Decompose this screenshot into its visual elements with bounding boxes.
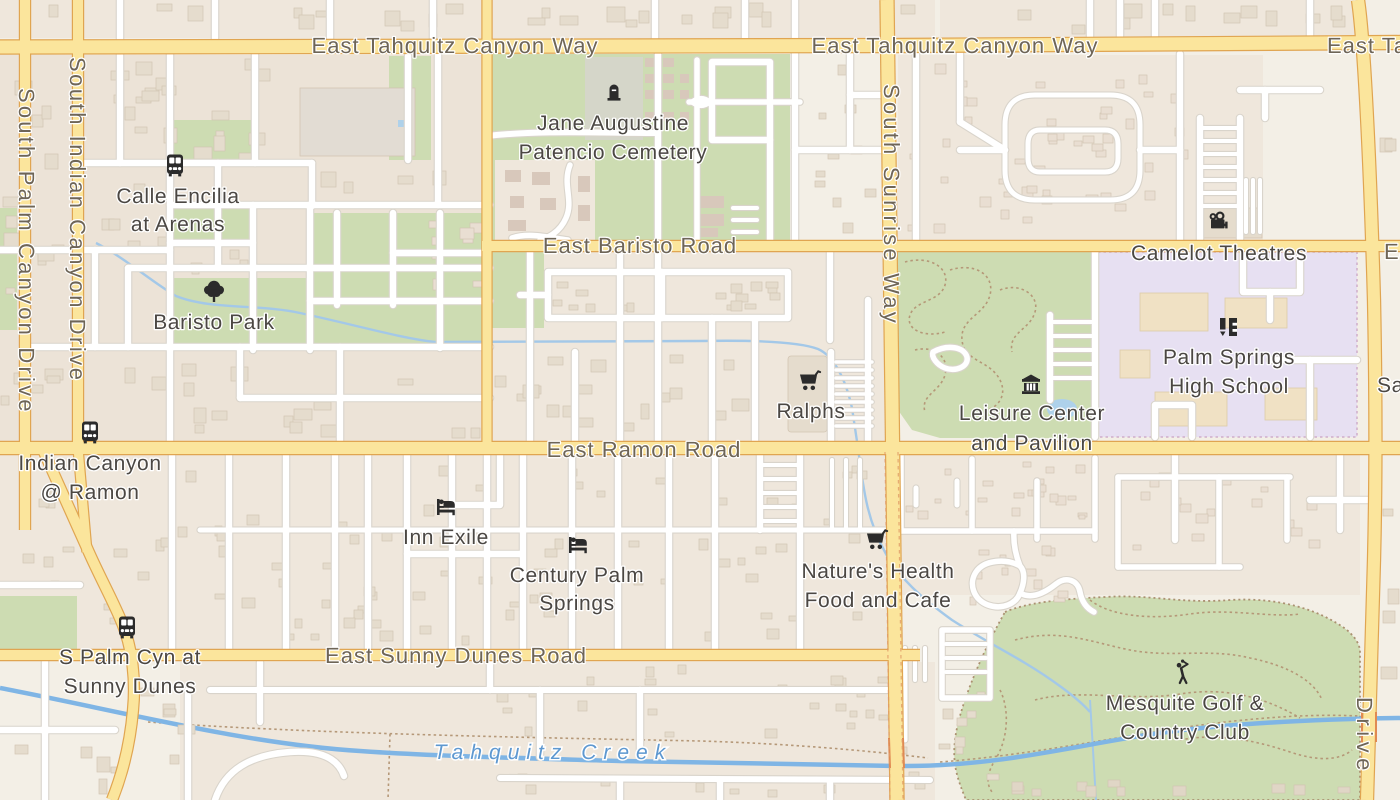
svg-text:@ Ramon: @ Ramon [40, 481, 139, 504]
svg-text:East Baristo Road: East Baristo Road [543, 233, 737, 258]
svg-text:Sa: Sa [1377, 374, 1400, 397]
svg-text:at Arenas: at Arenas [131, 213, 225, 236]
svg-text:Camelot Theatres: Camelot Theatres [1131, 242, 1307, 265]
svg-text:Nature's Health: Nature's Health [801, 560, 954, 583]
svg-text:Ralphs: Ralphs [777, 400, 846, 423]
svg-text:Palm Springs: Palm Springs [1163, 346, 1295, 369]
svg-text:East Tahquitz Canyon Way: East Tahquitz Canyon Way [312, 33, 599, 58]
svg-text:S Palm Cyn at: S Palm Cyn at [59, 646, 201, 669]
svg-text:and Pavilion: and Pavilion [971, 432, 1093, 455]
svg-text:Jane Augustine: Jane Augustine [537, 112, 689, 135]
svg-text:Inn Exile: Inn Exile [403, 526, 489, 549]
svg-text:South Indian Canyon Drive: South Indian Canyon Drive [65, 57, 90, 382]
svg-text:East Ramon Road: East Ramon Road [547, 437, 742, 462]
svg-text:Springs: Springs [539, 592, 614, 615]
svg-text:Mesquite Golf &: Mesquite Golf & [1106, 692, 1264, 715]
svg-text:Food and Cafe: Food and Cafe [805, 589, 952, 612]
svg-text:Indian Canyon: Indian Canyon [18, 452, 161, 475]
svg-text:Leisure Center: Leisure Center [959, 402, 1105, 425]
svg-text:Ea: Ea [1384, 239, 1400, 264]
svg-text:East Sunny Dunes Road: East Sunny Dunes Road [325, 643, 587, 668]
svg-text:Country Club: Country Club [1120, 721, 1250, 744]
svg-text:High School: High School [1169, 375, 1289, 398]
svg-text:East Tahquitz Canyon Way: East Tahquitz Canyon Way [812, 33, 1099, 58]
svg-text:Calle Encilia: Calle Encilia [116, 185, 239, 208]
svg-text:Century Palm: Century Palm [510, 564, 644, 587]
svg-text:Baristo Park: Baristo Park [153, 311, 275, 334]
svg-text:Drive: Drive [1352, 697, 1377, 776]
svg-text:Tahquitz Creek: Tahquitz Creek [434, 741, 672, 764]
svg-text:South Palm Canyon Drive: South Palm Canyon Drive [14, 88, 39, 415]
svg-text:South Sunrise Way: South Sunrise Way [879, 84, 904, 326]
svg-text:Sunny Dunes: Sunny Dunes [64, 675, 197, 698]
svg-text:East Tah: East Tah [1327, 33, 1400, 58]
svg-text:Patencio Cemetery: Patencio Cemetery [519, 141, 708, 164]
